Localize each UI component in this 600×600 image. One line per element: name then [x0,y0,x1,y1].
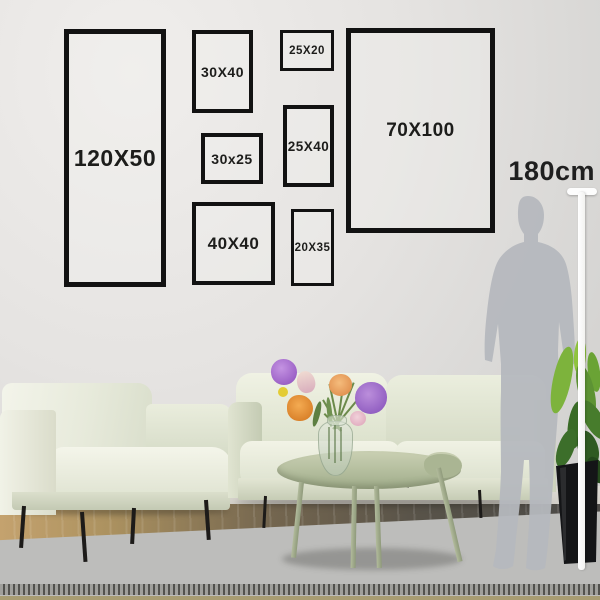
frame-40x40: 40X40 [192,202,275,285]
potted-plant [536,320,600,568]
cream-tulip-flower [295,369,318,395]
measure-line [578,192,585,570]
frame-size-label: 30x25 [211,151,252,167]
frame-30x25: 30x25 [201,133,263,184]
frame-size-label: 120X50 [74,145,156,172]
flower-leaf [311,401,323,428]
gallery-wall-scene: 120X50 30X40 25X20 30x25 25X40 70X100 40… [0,0,600,600]
purple-allium-flower [271,359,297,385]
yellow-bud [278,387,288,397]
frame-20x35: 20X35 [291,209,334,286]
purple-allium-flower [355,382,387,414]
frame-size-label: 40X40 [208,234,260,254]
frame-size-label: 70X100 [386,120,455,142]
frame-120x50: 120X50 [64,29,166,287]
orange-flower [287,395,313,421]
pink-bud [350,411,366,426]
frame-size-label: 30X40 [201,64,244,80]
coffee-table-raised-edge [424,452,462,478]
table-shadow [282,548,462,570]
frame-25x20: 25X20 [280,30,334,71]
glass-vase-neck [327,415,347,426]
rug-fringe [0,584,600,595]
height-label: 180cm [503,156,595,187]
frame-25x40: 25X40 [283,105,334,187]
armchair-base [12,492,230,510]
peach-poppy-flower [329,374,352,396]
stem-in-vase [340,427,342,461]
frame-70x100: 70X100 [346,28,495,233]
frame-size-label: 25X40 [288,139,330,154]
frame-30x40: 30X40 [192,30,253,113]
stem-in-vase [328,427,330,459]
flower-bouquet [270,355,400,480]
frame-size-label: 20X35 [295,242,331,254]
stem-in-vase [334,425,336,463]
frame-size-label: 25X20 [289,45,325,57]
